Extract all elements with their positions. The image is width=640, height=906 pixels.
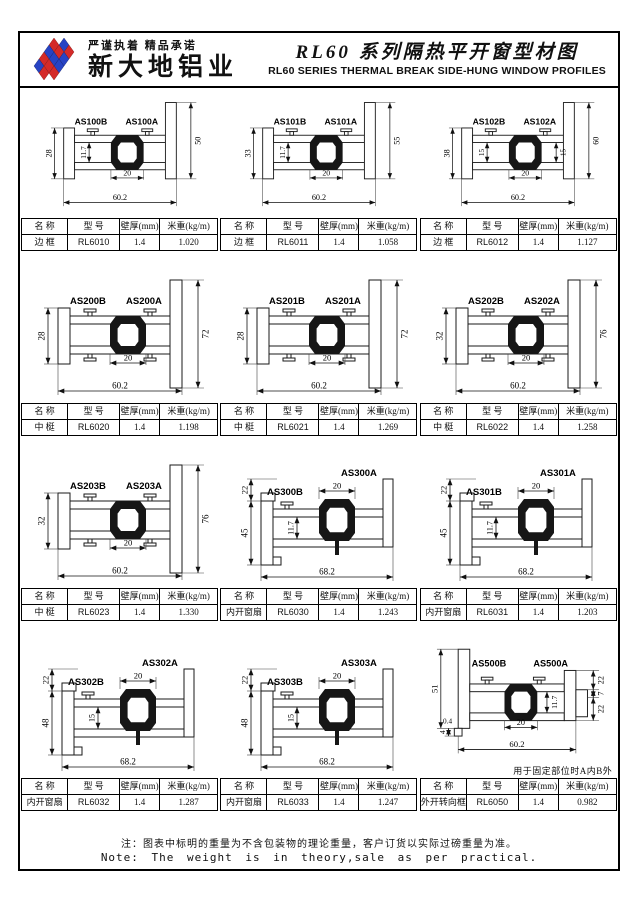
col-header-name: 名 称: [420, 779, 466, 795]
cell-model: RL6030: [267, 605, 319, 621]
part-labels: AS101BAS101A: [274, 116, 357, 126]
cell-weight: 1.330: [160, 605, 218, 621]
col-header-model: 型 号: [68, 404, 120, 420]
col-header-model: 型 号: [68, 219, 120, 235]
svg-text:15: 15: [87, 714, 96, 722]
cell-name: 边 框: [221, 235, 267, 251]
profile-drawing: 335511.72060.2AS101BAS101A: [221, 88, 417, 217]
profile-cell: 2022481568.2AS303BAS303A 名 称 型 号 壁厚(mm) …: [219, 628, 418, 818]
cell-name: 中 梃: [22, 420, 68, 436]
cell-model: RL6031: [466, 605, 518, 621]
spec-table: 名 称 型 号 壁厚(mm) 米重(kg/m) 边 框 RL6010 1.4 1…: [21, 218, 218, 251]
svg-text:11.7: 11.7: [486, 521, 495, 535]
table-row: 内开窗扇 RL6032 1.4 1.287: [22, 795, 218, 811]
cell-thickness: 1.4: [120, 420, 160, 436]
cell-name: 内开窗扇: [221, 795, 267, 811]
spec-table: 名 称 型 号 壁厚(mm) 米重(kg/m) 中 梃 RL6023 1.4 1…: [21, 588, 218, 621]
svg-text:AS303B: AS303B: [267, 677, 303, 688]
svg-text:AS100A: AS100A: [125, 116, 158, 126]
cell-name: 内开窗扇: [22, 795, 68, 811]
svg-text:72: 72: [200, 330, 210, 339]
col-header-weight: 米重(kg/m): [359, 219, 417, 235]
cell-thickness: 1.4: [518, 420, 558, 436]
svg-text:20: 20: [333, 671, 342, 681]
cell-model: RL6021: [267, 420, 319, 436]
svg-text:38: 38: [443, 149, 452, 157]
svg-text:20: 20: [532, 481, 541, 491]
cell-weight: 1.258: [558, 420, 616, 436]
svg-text:33: 33: [243, 149, 252, 157]
col-header-thickness: 壁厚(mm): [319, 589, 359, 605]
part-labels: AS301BAS301A: [466, 468, 576, 498]
profile-drawing: 32762060.2AS202BAS202A: [420, 258, 616, 402]
svg-text:AS102B: AS102B: [473, 116, 506, 126]
profile-outline: [263, 103, 376, 179]
svg-text:22: 22: [239, 486, 249, 495]
cell-weight: 1.287: [160, 795, 218, 811]
svg-text:60.2: 60.2: [510, 739, 525, 749]
part-labels: AS201BAS201A: [269, 296, 361, 307]
svg-text:AS300B: AS300B: [267, 487, 303, 498]
cell-weight: 1.127: [558, 235, 616, 251]
svg-text:AS302A: AS302A: [142, 658, 178, 669]
profile-cell: 285011.72060.2AS100BAS100A 名 称 型 号 壁厚(mm…: [20, 88, 219, 258]
profile-cell: 28722060.2AS200BAS200A 名 称 型 号 壁厚(mm) 米重…: [20, 258, 219, 443]
svg-text:15: 15: [478, 149, 486, 157]
svg-text:20: 20: [323, 353, 332, 363]
cell-model: RL6050: [466, 795, 518, 811]
cell-thickness: 1.4: [319, 235, 359, 251]
svg-text:AS300A: AS300A: [341, 468, 377, 479]
svg-text:15: 15: [560, 149, 568, 157]
col-header-name: 名 称: [22, 404, 68, 420]
col-header-model: 型 号: [466, 779, 518, 795]
svg-text:60.2: 60.2: [511, 193, 525, 202]
svg-text:20: 20: [123, 169, 131, 178]
cell-thickness: 1.4: [518, 795, 558, 811]
svg-text:AS500A: AS500A: [534, 659, 569, 669]
cell-thickness: 1.4: [120, 235, 160, 251]
col-header-model: 型 号: [267, 779, 319, 795]
profile-drawing: 2022481568.2AS302BAS302A: [22, 628, 218, 777]
col-header-thickness: 壁厚(mm): [518, 589, 558, 605]
col-header-weight: 米重(kg/m): [359, 779, 417, 795]
profile-cell: 28722060.2AS201BAS201A 名 称 型 号 壁厚(mm) 米重…: [219, 258, 418, 443]
table-row: 边 框 RL6012 1.4 1.127: [420, 235, 616, 251]
cell-name: 边 框: [420, 235, 466, 251]
svg-text:AS202A: AS202A: [524, 296, 560, 307]
svg-text:20: 20: [517, 718, 525, 727]
col-header-thickness: 壁厚(mm): [518, 404, 558, 420]
svg-text:45: 45: [239, 528, 249, 538]
company-name: 新大地铝业: [88, 54, 238, 79]
cell-model: RL6020: [68, 420, 120, 436]
cell-model: RL6023: [68, 605, 120, 621]
table-row: 边 框 RL6010 1.4 1.020: [22, 235, 218, 251]
svg-text:AS201B: AS201B: [269, 296, 305, 307]
col-header-model: 型 号: [466, 589, 518, 605]
svg-text:20: 20: [333, 481, 342, 491]
col-header-name: 名 称: [420, 219, 466, 235]
svg-text:60.2: 60.2: [113, 193, 127, 202]
col-header-thickness: 壁厚(mm): [319, 779, 359, 795]
col-header-model: 型 号: [267, 589, 319, 605]
svg-text:20: 20: [123, 538, 132, 548]
col-header-model: 型 号: [466, 219, 518, 235]
col-header-thickness: 壁厚(mm): [120, 589, 160, 605]
cell-thickness: 1.4: [518, 235, 558, 251]
cell-name: 内开窗扇: [221, 605, 267, 621]
page-title-cn: RL60 系列隔热平开窗型材图: [268, 43, 606, 62]
table-row: 外开转向框 RL6050 1.4 0.982: [420, 795, 616, 811]
profile-cell: 20224511.768.2AS301BAS301A 名 称 型 号 壁厚(mm…: [419, 443, 618, 628]
part-labels: AS500BAS500A: [472, 659, 569, 669]
col-header-thickness: 壁厚(mm): [120, 219, 160, 235]
col-header-model: 型 号: [68, 589, 120, 605]
svg-text:20: 20: [522, 353, 531, 363]
cell-weight: 0.982: [558, 795, 616, 811]
svg-text:22: 22: [40, 676, 50, 685]
profile-cell: 2022481568.2AS302BAS302A 名 称 型 号 壁厚(mm) …: [20, 628, 219, 818]
cell-model: RL6022: [466, 420, 518, 436]
spec-table: 名 称 型 号 壁厚(mm) 米重(kg/m) 外开转向框 RL6050 1.4…: [420, 778, 617, 811]
cell-weight: 1.058: [359, 235, 417, 251]
profile-drawing: 386015152060.2AS102BAS102A: [420, 88, 616, 217]
col-header-weight: 米重(kg/m): [359, 404, 417, 420]
svg-text:AS301A: AS301A: [540, 468, 576, 479]
cell-thickness: 1.4: [120, 795, 160, 811]
spec-table: 名 称 型 号 壁厚(mm) 米重(kg/m) 内开窗扇 RL6031 1.4 …: [420, 588, 617, 621]
table-row: 中 梃 RL6023 1.4 1.330: [22, 605, 218, 621]
footer-note-cn: 注：图表中标明的重量为不含包装物的理论重量，客户订货以实际过磅重量为准。: [20, 838, 618, 851]
svg-text:45: 45: [439, 528, 449, 538]
part-labels: AS200BAS200A: [70, 296, 162, 307]
col-header-weight: 米重(kg/m): [160, 404, 218, 420]
spec-table: 名 称 型 号 壁厚(mm) 米重(kg/m) 中 梃 RL6021 1.4 1…: [220, 403, 417, 436]
svg-text:20: 20: [322, 169, 330, 178]
company-logo-icon: [30, 37, 82, 83]
spec-table: 名 称 型 号 壁厚(mm) 米重(kg/m) 内开窗扇 RL6030 1.4 …: [220, 588, 417, 621]
svg-text:AS101B: AS101B: [274, 116, 307, 126]
col-header-weight: 米重(kg/m): [160, 219, 218, 235]
svg-text:76: 76: [200, 514, 210, 524]
cell-name: 中 梃: [221, 420, 267, 436]
col-header-weight: 米重(kg/m): [558, 779, 616, 795]
svg-text:60.2: 60.2: [510, 381, 526, 391]
cell-weight: 1.243: [359, 605, 417, 621]
svg-text:7: 7: [597, 692, 606, 696]
svg-text:68.2: 68.2: [518, 567, 534, 577]
svg-text:AS200A: AS200A: [126, 296, 162, 307]
cell-weight: 1.198: [160, 420, 218, 436]
cell-model: RL6010: [68, 235, 120, 251]
title-block: RL60 系列隔热平开窗型材图 RL60 SERIES THERMAL BREA…: [268, 43, 618, 77]
profile-drawing: 285011.72060.2AS100BAS100A: [22, 88, 218, 217]
profile-cell: 20224511.768.2AS300BAS300A 名 称 型 号 壁厚(mm…: [219, 443, 418, 628]
svg-text:15: 15: [286, 714, 295, 722]
col-header-model: 型 号: [68, 779, 120, 795]
part-labels: AS203BAS203A: [70, 481, 162, 492]
spec-table: 名 称 型 号 壁厚(mm) 米重(kg/m) 边 框 RL6011 1.4 1…: [220, 218, 417, 251]
svg-text:AS201A: AS201A: [325, 296, 361, 307]
svg-text:AS302B: AS302B: [68, 677, 104, 688]
page-footer: 注：图表中标明的重量为不含包装物的理论重量，客户订货以实际过磅重量为准。 Not…: [20, 838, 618, 865]
spec-table: 名 称 型 号 壁厚(mm) 米重(kg/m) 内开窗扇 RL6033 1.4 …: [220, 778, 417, 811]
cell-thickness: 1.4: [319, 795, 359, 811]
cell-thickness: 1.4: [319, 420, 359, 436]
svg-text:20: 20: [123, 353, 132, 363]
svg-text:AS203A: AS203A: [126, 481, 162, 492]
svg-text:22: 22: [439, 486, 449, 495]
svg-text:55: 55: [392, 137, 401, 145]
part-labels: AS202BAS202A: [468, 296, 560, 307]
svg-text:51: 51: [430, 684, 440, 693]
svg-text:28: 28: [36, 331, 46, 341]
svg-text:AS102A: AS102A: [524, 116, 557, 126]
profile-drawing: 5140.42272211.72060.2AS500BAS500A: [420, 628, 616, 765]
svg-text:68.2: 68.2: [120, 757, 136, 767]
profile-drawing: 2022481568.2AS303BAS303A: [221, 628, 417, 777]
profile-drawing: 28722060.2AS200BAS200A: [22, 258, 218, 402]
page-header: 严谨执着 精品承诺 新大地铝业 RL60 系列隔热平开窗型材图 RL60 SER…: [20, 33, 618, 88]
brand-block: 严谨执着 精品承诺 新大地铝业: [88, 41, 238, 79]
profile-drawing: 20224511.768.2AS301BAS301A: [420, 443, 616, 587]
cell-name: 边 框: [22, 235, 68, 251]
col-header-name: 名 称: [221, 219, 267, 235]
table-row: 中 梃 RL6020 1.4 1.198: [22, 420, 218, 436]
svg-text:22: 22: [597, 676, 606, 684]
svg-text:22: 22: [239, 676, 249, 685]
cell-thickness: 1.4: [120, 605, 160, 621]
cell-weight: 1.247: [359, 795, 417, 811]
part-labels: AS102BAS102A: [473, 116, 556, 126]
cell-name: 内开窗扇: [420, 605, 466, 621]
part-labels: AS303BAS303A: [267, 658, 377, 688]
svg-text:11.7: 11.7: [279, 146, 287, 159]
profile-outline: [462, 103, 575, 179]
spec-table: 名 称 型 号 壁厚(mm) 米重(kg/m) 边 框 RL6012 1.4 1…: [420, 218, 617, 251]
col-header-weight: 米重(kg/m): [558, 589, 616, 605]
col-header-weight: 米重(kg/m): [160, 589, 218, 605]
col-header-model: 型 号: [466, 404, 518, 420]
table-row: 内开窗扇 RL6030 1.4 1.243: [221, 605, 417, 621]
svg-text:20: 20: [522, 169, 530, 178]
spec-table: 名 称 型 号 壁厚(mm) 米重(kg/m) 中 梃 RL6022 1.4 1…: [420, 403, 617, 436]
col-header-weight: 米重(kg/m): [160, 779, 218, 795]
cell-weight: 1.020: [160, 235, 218, 251]
svg-text:60.2: 60.2: [112, 381, 128, 391]
cell-thickness: 1.4: [518, 605, 558, 621]
svg-text:60.2: 60.2: [112, 566, 128, 576]
cell-model: RL6032: [68, 795, 120, 811]
col-header-weight: 米重(kg/m): [558, 219, 616, 235]
svg-text:32: 32: [435, 332, 445, 341]
svg-text:AS203B: AS203B: [70, 481, 106, 492]
profile-drawing: 32762060.2AS203BAS203A: [22, 443, 218, 587]
cell-thickness: 1.4: [319, 605, 359, 621]
table-row: 内开窗扇 RL6033 1.4 1.247: [221, 795, 417, 811]
cell-name: 中 梃: [22, 605, 68, 621]
svg-text:48: 48: [40, 718, 50, 728]
svg-text:AS101A: AS101A: [324, 116, 357, 126]
col-header-name: 名 称: [420, 589, 466, 605]
svg-text:28: 28: [235, 331, 245, 341]
col-header-thickness: 壁厚(mm): [120, 404, 160, 420]
svg-text:76: 76: [599, 329, 609, 339]
svg-text:11.7: 11.7: [80, 146, 88, 159]
col-header-name: 名 称: [221, 779, 267, 795]
col-header-thickness: 壁厚(mm): [518, 779, 558, 795]
table-row: 中 梃 RL6021 1.4 1.269: [221, 420, 417, 436]
col-header-thickness: 壁厚(mm): [518, 219, 558, 235]
col-header-name: 名 称: [420, 404, 466, 420]
col-header-model: 型 号: [267, 404, 319, 420]
cell-weight: 1.269: [359, 420, 417, 436]
cell-model: RL6012: [466, 235, 518, 251]
cell-weight: 1.203: [558, 605, 616, 621]
table-row: 中 梃 RL6022 1.4 1.258: [420, 420, 616, 436]
svg-text:11.7: 11.7: [550, 696, 559, 709]
svg-text:60.2: 60.2: [311, 381, 327, 391]
svg-text:48: 48: [239, 718, 249, 728]
svg-text:72: 72: [399, 330, 409, 339]
svg-text:11.7: 11.7: [286, 521, 295, 535]
svg-text:0.4: 0.4: [443, 718, 452, 726]
svg-text:20: 20: [133, 671, 142, 681]
profile-grid: 285011.72060.2AS100BAS100A 名 称 型 号 壁厚(mm…: [20, 88, 618, 818]
svg-text:60: 60: [592, 137, 601, 145]
cell-note: 用于固定部位时A内B外: [424, 765, 612, 777]
col-header-model: 型 号: [267, 219, 319, 235]
profile-cell: 32762060.2AS202BAS202A 名 称 型 号 壁厚(mm) 米重…: [419, 258, 618, 443]
svg-text:60.2: 60.2: [312, 193, 326, 202]
profile-outline: [63, 103, 176, 179]
svg-text:AS202B: AS202B: [468, 296, 504, 307]
profile-cell: 386015152060.2AS102BAS102A 名 称 型 号 壁厚(mm…: [419, 88, 618, 258]
part-labels: AS302BAS302A: [68, 658, 178, 688]
svg-text:68.2: 68.2: [319, 757, 335, 767]
svg-text:AS301B: AS301B: [466, 487, 502, 498]
svg-text:AS200B: AS200B: [70, 296, 106, 307]
table-row: 内开窗扇 RL6031 1.4 1.203: [420, 605, 616, 621]
svg-text:4: 4: [438, 730, 447, 734]
spec-table: 名 称 型 号 壁厚(mm) 米重(kg/m) 中 梃 RL6020 1.4 1…: [21, 403, 218, 436]
footer-note-en: Note: The weight is in theory,sale as pe…: [20, 851, 618, 865]
col-header-name: 名 称: [22, 589, 68, 605]
col-header-weight: 米重(kg/m): [558, 404, 616, 420]
spec-table: 名 称 型 号 壁厚(mm) 米重(kg/m) 内开窗扇 RL6032 1.4 …: [21, 778, 218, 811]
profile-cell: 5140.42272211.72060.2AS500BAS500A 用于固定部位…: [419, 628, 618, 818]
svg-text:68.2: 68.2: [319, 567, 335, 577]
svg-text:22: 22: [597, 705, 606, 713]
profile-cell: 335511.72060.2AS101BAS101A 名 称 型 号 壁厚(mm…: [219, 88, 418, 258]
page-title-en: RL60 SERIES THERMAL BREAK SIDE-HUNG WIND…: [268, 66, 606, 77]
svg-text:AS303A: AS303A: [341, 658, 377, 669]
profile-drawing: 28722060.2AS201BAS201A: [221, 258, 417, 402]
col-header-name: 名 称: [22, 779, 68, 795]
svg-text:50: 50: [193, 137, 202, 145]
cell-model: RL6011: [267, 235, 319, 251]
col-header-thickness: 壁厚(mm): [120, 779, 160, 795]
svg-text:AS100B: AS100B: [74, 116, 107, 126]
profile-drawing: 20224511.768.2AS300BAS300A: [221, 443, 417, 587]
cell-name: 中 梃: [420, 420, 466, 436]
col-header-name: 名 称: [221, 404, 267, 420]
profile-cell: 32762060.2AS203BAS203A 名 称 型 号 壁厚(mm) 米重…: [20, 443, 219, 628]
col-header-weight: 米重(kg/m): [359, 589, 417, 605]
svg-text:28: 28: [44, 149, 53, 157]
part-labels: AS300BAS300A: [267, 468, 377, 498]
catalog-page: 严谨执着 精品承诺 新大地铝业 RL60 系列隔热平开窗型材图 RL60 SER…: [18, 31, 620, 871]
cell-name: 外开转向框: [420, 795, 466, 811]
col-header-thickness: 壁厚(mm): [319, 219, 359, 235]
svg-text:32: 32: [36, 517, 46, 526]
brand-slogan: 严谨执着 精品承诺: [88, 41, 238, 52]
part-labels: AS100BAS100A: [74, 116, 157, 126]
col-header-name: 名 称: [221, 589, 267, 605]
col-header-name: 名 称: [22, 219, 68, 235]
svg-text:AS500B: AS500B: [472, 659, 507, 669]
cell-model: RL6033: [267, 795, 319, 811]
col-header-thickness: 壁厚(mm): [319, 404, 359, 420]
table-row: 边 框 RL6011 1.4 1.058: [221, 235, 417, 251]
